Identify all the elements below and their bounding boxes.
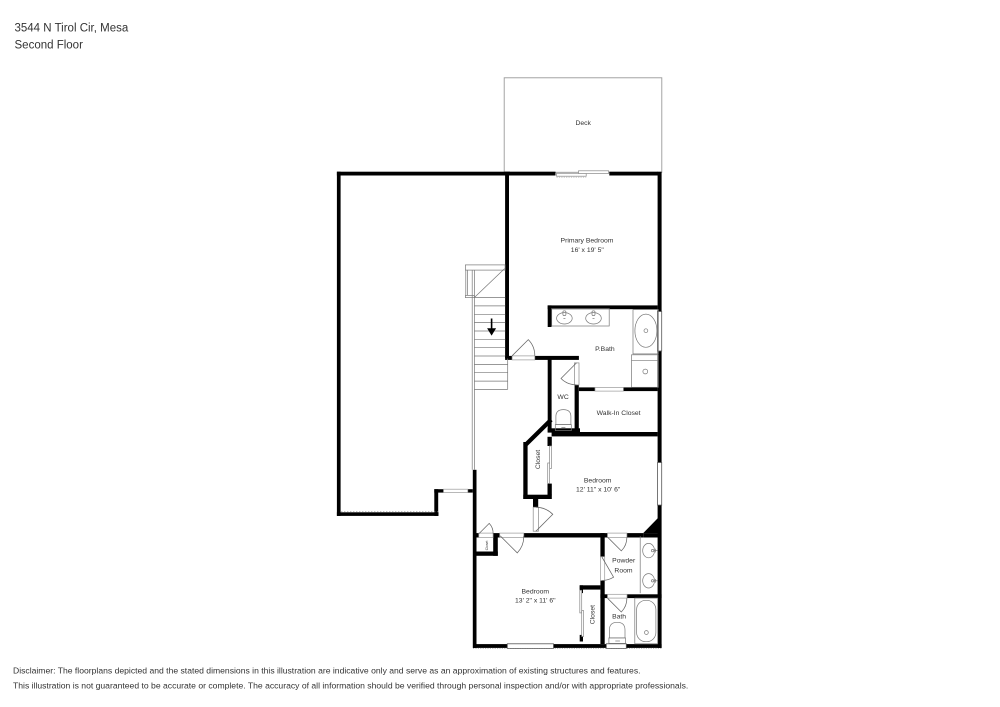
svg-text:Closet: Closet [589, 605, 596, 624]
svg-text:Closet: Closet [485, 541, 489, 551]
svg-text:13' 2" x 11' 6": 13' 2" x 11' 6" [515, 597, 556, 604]
svg-text:Bedroom: Bedroom [522, 589, 550, 596]
svg-text:Primary Bedroom: Primary Bedroom [561, 238, 614, 245]
svg-text:16' x 19' 5": 16' x 19' 5" [571, 247, 605, 254]
svg-text:Bedroom: Bedroom [584, 478, 612, 485]
svg-text:Second Floor: Second Floor [15, 40, 84, 52]
svg-text:Deck: Deck [575, 120, 591, 127]
svg-text:Disclaimer: The floorplans dep: Disclaimer: The floorplans depicted and … [13, 665, 641, 675]
svg-text:P.Bath: P.Bath [595, 346, 615, 353]
svg-text:Powder: Powder [612, 557, 636, 564]
svg-text:Room: Room [614, 568, 632, 575]
svg-text:12' 11" x 10' 6": 12' 11" x 10' 6" [576, 487, 621, 494]
svg-text:Bath: Bath [612, 614, 626, 621]
svg-text:3544 N Tirol Cir, Mesa: 3544 N Tirol Cir, Mesa [15, 22, 129, 34]
svg-text:WC: WC [557, 394, 568, 401]
svg-text:Walk-In Closet: Walk-In Closet [597, 410, 641, 417]
svg-text:Closet: Closet [535, 450, 542, 469]
svg-text:This illustration is not guara: This illustration is not guaranteed to b… [13, 681, 688, 691]
